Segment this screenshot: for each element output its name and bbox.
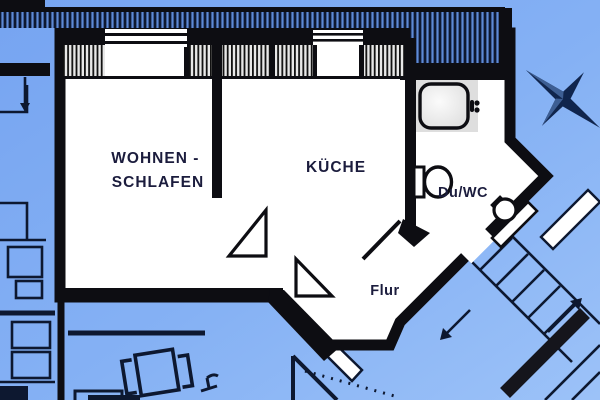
floor-plan-page: WOHNEN - SCHLAFEN KÜCHE Du/WC Flur — [0, 0, 600, 400]
label-kitchen: KÜCHE — [306, 159, 366, 176]
balcony-door-sill — [105, 29, 187, 47]
label-bath: Du/WC — [438, 185, 488, 201]
label-hall: Flur — [370, 283, 399, 299]
window-hatch — [63, 45, 105, 78]
window-hatch — [275, 45, 313, 78]
kitchen-door-sill — [313, 30, 363, 45]
window-hatch — [363, 45, 405, 78]
floor-plan: WOHNEN - SCHLAFEN KÜCHE Du/WC Flur — [0, 0, 600, 400]
window-hatch — [188, 45, 270, 78]
shower-tray — [420, 84, 468, 128]
windows — [55, 28, 410, 79]
